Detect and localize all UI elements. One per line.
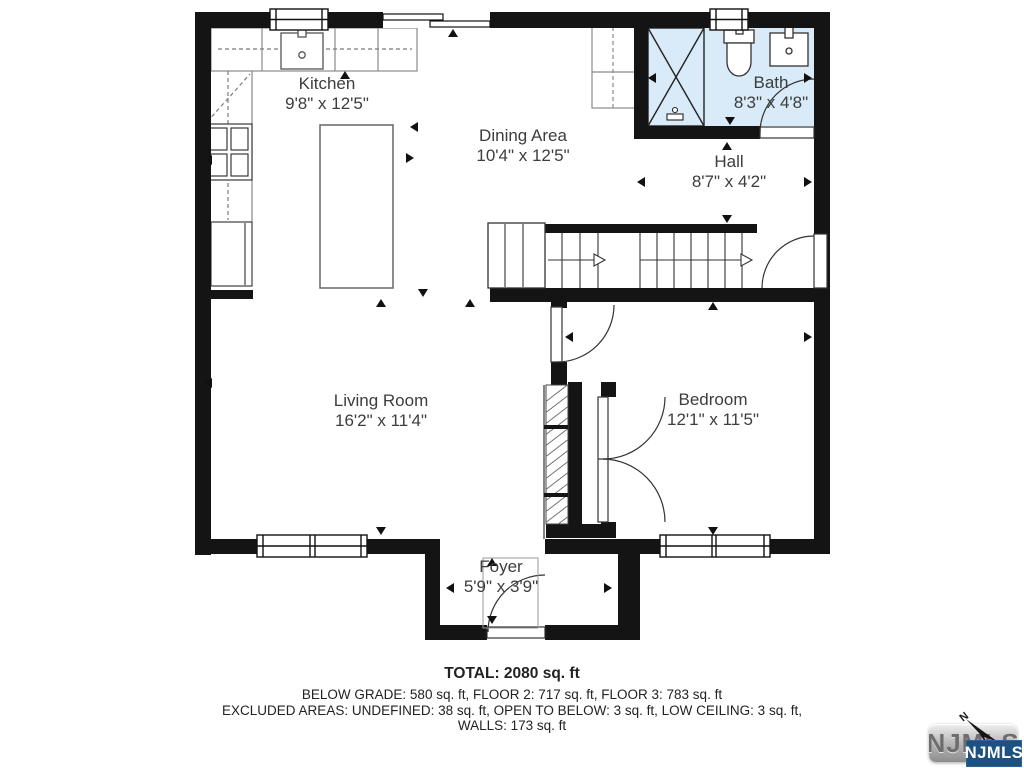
room-label-kitchen: Kitchen 9'8" x 12'5" xyxy=(285,74,369,114)
living-room-window xyxy=(257,535,367,557)
room-label-bedroom: Bedroom 12'1" x 11'5" xyxy=(667,390,759,430)
total-area: TOTAL: 2080 sq. ft xyxy=(0,665,1024,683)
wall-area: WALLS: 173 sq. ft xyxy=(0,718,1024,734)
bedroom-door xyxy=(551,305,614,362)
stair-landing-door xyxy=(762,234,827,288)
room-dims: 9'8" x 12'5" xyxy=(285,94,369,114)
kitchen-window xyxy=(270,9,328,30)
room-dims: 5'9" x 3'9" xyxy=(464,577,538,597)
room-name: Hall xyxy=(692,152,766,172)
area-summary: TOTAL: 2080 sq. ft BELOW GRADE: 580 sq. … xyxy=(0,665,1024,734)
shower-icon xyxy=(648,28,704,126)
room-name: Bath xyxy=(734,73,808,93)
stove-icon xyxy=(206,124,252,180)
room-name: Kitchen xyxy=(285,74,369,94)
room-label-foyer: Foyer 5'9" x 3'9" xyxy=(464,557,538,597)
toilet-icon xyxy=(724,30,754,76)
room-dims: 8'7" x 4'2" xyxy=(692,172,766,192)
njmls-logo-text: NJMLS xyxy=(965,744,1023,763)
njmls-logo-badge: NJMLS xyxy=(966,740,1022,767)
room-dims: 10'4" x 12'5" xyxy=(476,146,569,166)
stair-direction-arrows xyxy=(548,254,752,266)
room-name: Foyer xyxy=(464,557,538,577)
excluded-areas: EXCLUDED AREAS: UNDEFINED: 38 sq. ft, OP… xyxy=(0,703,1024,719)
room-label-hall: Hall 8'7" x 4'2" xyxy=(692,152,766,192)
room-label-living-room: Living Room 16'2" x 11'4" xyxy=(334,391,429,431)
room-name: Dining Area xyxy=(476,126,569,146)
room-dims: 12'1" x 11'5" xyxy=(667,410,759,430)
room-name: Bedroom xyxy=(667,390,759,410)
fridge-icon xyxy=(211,222,252,286)
room-label-bath: Bath 8'3" x 4'8" xyxy=(734,73,808,113)
room-label-dining-area: Dining Area 10'4" x 12'5" xyxy=(476,126,569,166)
room-name: Living Room xyxy=(334,391,429,411)
floor-plan-page: Kitchen 9'8" x 12'5" Dining Area 10'4" x… xyxy=(0,0,1024,768)
bedroom-window xyxy=(660,535,770,557)
sliding-door xyxy=(383,12,490,28)
room-dims: 8'3" x 4'8" xyxy=(734,93,808,113)
closet-double-doors xyxy=(598,397,665,522)
floor-plan-drawing xyxy=(0,0,1024,768)
kitchen-island xyxy=(320,125,393,288)
bath-window xyxy=(710,9,748,30)
floor-areas: BELOW GRADE: 580 sq. ft, FLOOR 2: 717 sq… xyxy=(0,687,1024,703)
room-dims: 16'2" x 11'4" xyxy=(334,411,429,431)
dining-cabinet xyxy=(592,27,635,108)
